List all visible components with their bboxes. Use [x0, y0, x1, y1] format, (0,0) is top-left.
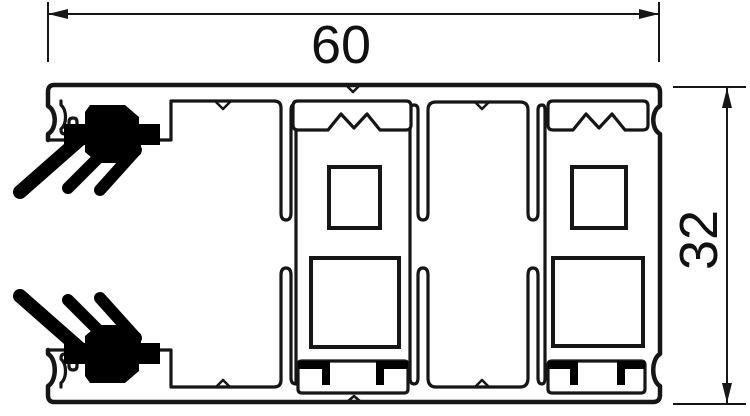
profile-drawing: 60 32 [0, 0, 750, 416]
height-dimension-value: 32 [669, 210, 729, 270]
width-arrow-left [48, 9, 68, 19]
screw-flute-top-right [548, 101, 648, 130]
screw-port-small-middle [329, 167, 380, 228]
width-arrow-right [639, 9, 659, 19]
screw-port-small-right [572, 167, 626, 228]
screw-port-large-middle [311, 258, 399, 347]
gasket-top [20, 105, 160, 192]
width-dimension: 60 [48, 2, 659, 75]
height-arrow-down [722, 383, 732, 403]
width-dimension-value: 60 [311, 15, 371, 75]
screw-flute-top-middle [293, 101, 411, 130]
screw-port-large-right [553, 258, 643, 346]
gasket-bottom [20, 296, 160, 383]
height-arrow-up [722, 88, 732, 108]
height-dimension: 32 [669, 87, 746, 404]
